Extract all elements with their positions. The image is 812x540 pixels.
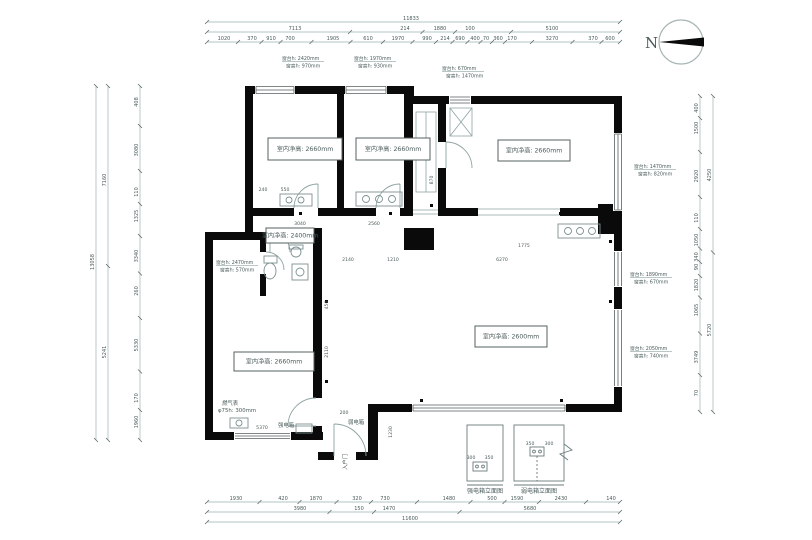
room-labels: 室内净高: 2660mm室内净高: 2660mm室内净高: 2660mm室内净高… — [234, 138, 570, 371]
interior-dim: 350 — [526, 441, 535, 447]
wall-left-upper — [245, 86, 253, 240]
wall-right-1 — [614, 104, 622, 134]
chain-left-total: 13058 — [90, 84, 98, 442]
dim-label: 700 — [285, 36, 295, 42]
dim-label: 400 — [470, 36, 480, 42]
dim-label: 1480 — [443, 496, 456, 502]
shaft-cross — [450, 108, 472, 136]
chain-left-detail: 40830801101325334026053301701960 — [134, 84, 142, 442]
detail-caption-2: 弱电箱立面图 — [521, 487, 557, 495]
wall-right-3 — [614, 286, 622, 310]
dim-label: 214 — [440, 36, 450, 42]
floor-plan-svg: N 强电箱立面图 弱电箱立面图 118337113214188010051001… — [0, 0, 812, 540]
interior-dim: 1230 — [388, 426, 394, 438]
room-label-living: 室内净高: 2600mm — [475, 326, 547, 347]
dim-label: 1500 — [694, 122, 700, 135]
dim-label: 1870 — [310, 496, 323, 502]
dim-label: 600 — [605, 36, 615, 42]
door-swing-kitchen — [288, 398, 316, 426]
window-height-text: 窗高h: 1470mm — [446, 72, 484, 79]
dim-label: 2920 — [694, 170, 700, 183]
window-right-2 — [613, 251, 623, 287]
dim-label: 7160 — [102, 174, 108, 187]
dim-label: 1065 — [694, 304, 700, 317]
window-annotation-7: 窗台h: 2050mm窗高h: 740mm — [630, 345, 672, 359]
dim-label: 1590 — [511, 496, 524, 502]
interior-dim: 300 — [545, 441, 554, 447]
room-label-text: 室内净高: 2660mm — [246, 358, 303, 366]
interior-dim: 2140 — [342, 257, 354, 263]
break-line — [560, 444, 572, 460]
dim-label: 5330 — [134, 339, 140, 352]
dim-label: 1325 — [134, 210, 140, 223]
chain-bottom-total: 11600 — [205, 516, 622, 524]
interior-dim: 550 — [281, 187, 290, 193]
wall-kitchen-right-lower — [313, 426, 322, 440]
window-height-text: 窗高h: 570mm — [220, 266, 255, 273]
window-annotation-2: 窗台h: 1970mm窗高h: 930mm — [354, 55, 396, 69]
window-sill-text: 窗台h: 2420mm — [282, 55, 320, 62]
dresser-bed3 — [558, 224, 600, 238]
misc-label: φ75h: 300mm — [218, 408, 256, 414]
room-label-text: 室内净高: 2400mm — [262, 232, 319, 240]
chain-top-mid: 711321418801005100 — [205, 26, 622, 34]
dim-label: 11600 — [402, 516, 418, 522]
window-sill-text: 窗台h: 1890mm — [630, 271, 668, 278]
dim-label: 140 — [606, 496, 616, 502]
dim-label: 990 — [422, 36, 432, 42]
dim-label: 1820 — [694, 279, 700, 292]
window-sill-text: 窗台h: 670mm — [442, 65, 477, 72]
window-height-text: 窗高h: 740mm — [634, 352, 669, 359]
room-label-text: 室内净高: 2600mm — [483, 333, 540, 341]
interior-dim: 1775 — [518, 243, 530, 249]
interior-dim: 240 — [259, 187, 268, 193]
room-label-text: 室内净高: 2660mm — [365, 145, 422, 153]
room-label-bedroom-3: 室内净高: 2660mm — [498, 140, 570, 161]
interior-dim: 350 — [485, 455, 494, 461]
detail-caption-1: 强电箱立面图 — [467, 487, 503, 495]
detail-block-2 — [514, 425, 572, 485]
dim-label: 730 — [380, 496, 390, 502]
detail-block-1 — [467, 425, 503, 485]
interior-dimensions: 2405503040256021401210627017758704502110… — [256, 176, 553, 461]
floor-plan-page: N 强电箱立面图 弱电箱立面图 118337113214188010051001… — [0, 0, 812, 540]
dim-label: 7113 — [289, 26, 302, 32]
dim-label: 110 — [134, 187, 140, 197]
dim-label: 5241 — [102, 346, 108, 359]
chain-right-total: 42505720 — [707, 94, 715, 414]
column — [404, 228, 434, 250]
wall-kitchen-right-upper — [313, 296, 322, 398]
wall-entry-stub — [368, 404, 378, 460]
interior-dim: 450 — [324, 301, 330, 310]
detail-blocks: 强电箱立面图 弱电箱立面图 — [467, 425, 572, 495]
dim-label: 3270 — [546, 36, 559, 42]
dim-label: 90 — [694, 264, 700, 270]
interior-dim: 1210 — [387, 257, 399, 263]
wall-left-lower — [205, 232, 213, 440]
dim-label: 340 — [694, 252, 700, 262]
room-label-bedroom-2: 室内净高: 2660mm — [356, 138, 430, 160]
dim-label: 910 — [266, 36, 276, 42]
dim-label: 1020 — [218, 36, 231, 42]
window-right-1 — [613, 133, 623, 211]
dim-label: 1905 — [327, 36, 340, 42]
room-label-bathroom: 室内净高: 2400mm — [262, 228, 319, 243]
window-annotation-5: 窗台h: 1470mm窗高h: 820mm — [634, 163, 676, 177]
dim-label: 70 — [483, 36, 489, 42]
window-annotation-3: 窗台h: 670mm窗高h: 1470mm — [442, 65, 484, 79]
door-gap-bed2 — [376, 207, 400, 217]
dim-label: 260 — [134, 286, 140, 296]
dim-label: 170 — [134, 393, 140, 403]
window-sill-text: 窗台h: 1970mm — [354, 55, 392, 62]
cased-opening-living — [478, 209, 560, 215]
window-right-3 — [613, 309, 623, 387]
interior-dim: 6270 — [496, 257, 508, 263]
room-label-text: 室内净高: 2660mm — [277, 145, 334, 153]
dim-label: 3980 — [294, 506, 307, 512]
washing-machine — [292, 264, 308, 280]
wall-top-right — [404, 96, 622, 104]
window-top-3 — [449, 95, 471, 105]
dim-label: 360 — [493, 36, 503, 42]
wall-entry-right — [356, 452, 370, 460]
window-height-text: 窗高h: 820mm — [638, 170, 673, 177]
room-label-text: 室内净高: 2660mm — [506, 147, 563, 155]
window-sill-text: 窗台h: 2470mm — [216, 259, 254, 266]
chain-top-detail: 1020370910700190561019709902146904007036… — [205, 36, 622, 44]
dim-label: 13058 — [90, 254, 96, 270]
dim-label: 11833 — [403, 16, 419, 22]
dim-label: 3340 — [134, 250, 140, 263]
dim-label: 5720 — [707, 324, 713, 337]
dim-label: 370 — [247, 36, 257, 42]
room-label-bedroom-1: 室内净高: 2660mm — [268, 138, 342, 160]
wall-right-2 — [614, 234, 622, 252]
dim-label: 370 — [588, 36, 598, 42]
window-sill-text: 窗台h: 2050mm — [630, 345, 668, 352]
dim-label: 1930 — [230, 496, 243, 502]
dim-label: 2430 — [555, 496, 568, 502]
wall-entry-left — [318, 452, 334, 460]
dim-label: 170 — [507, 36, 517, 42]
window-height-text: 窗高h: 670mm — [634, 278, 669, 285]
dim-label: 150 — [354, 506, 364, 512]
dim-label: 110 — [694, 213, 700, 223]
door-swing-bed1 — [294, 184, 318, 208]
dim-label: 1880 — [434, 26, 447, 32]
north-needle-icon — [659, 38, 704, 47]
dim-label: 5680 — [524, 506, 537, 512]
dim-label: 690 — [455, 36, 465, 42]
interior-dim: 5370 — [256, 425, 268, 431]
dim-label: 100 — [465, 26, 475, 32]
radiator-bed2 — [356, 192, 402, 206]
chain-right-detail: 4001500292011010503409018201065374970 — [694, 94, 702, 414]
sink — [289, 245, 303, 257]
door-swing-bed3 — [446, 142, 472, 168]
dim-label: 1970 — [392, 36, 405, 42]
dim-label: 400 — [694, 103, 700, 113]
interior-dim: 300 — [467, 455, 476, 461]
dim-label: 3080 — [134, 144, 140, 157]
dim-label: 4250 — [707, 169, 713, 182]
dim-label: 420 — [278, 496, 288, 502]
dim-label: 1470 — [383, 506, 396, 512]
door-gap-bed1 — [294, 207, 318, 217]
dim-label: 70 — [694, 390, 700, 396]
window-annotation-6: 窗台h: 1890mm窗高h: 670mm — [630, 271, 672, 285]
misc-label: 入户门 — [341, 454, 349, 470]
cased-opening-hall — [413, 210, 438, 214]
dim-label: 500 — [487, 496, 497, 502]
window-annotation-1: 窗台h: 2420mm窗高h: 970mm — [282, 55, 324, 69]
entry-cabinet — [296, 424, 312, 433]
window-kitchen — [234, 431, 291, 441]
room-label-kitchen: 室内净高: 2660mm — [234, 352, 314, 371]
dim-label: 214 — [400, 26, 410, 32]
dim-label: 3749 — [694, 351, 700, 364]
chain-top-total: 11833 — [205, 16, 622, 24]
gas-meter — [230, 418, 248, 428]
window-top-1 — [255, 85, 295, 95]
window-bottom-1 — [412, 403, 566, 413]
chain-left-mid: 71605241 — [102, 84, 110, 442]
misc-label: 弱电箱 — [348, 418, 365, 426]
dim-label: 5100 — [546, 26, 559, 32]
interior-dim: 200 — [340, 410, 349, 416]
dim-label: 1960 — [134, 416, 140, 429]
north-arrow: N — [645, 20, 704, 64]
door-swing-entry — [334, 424, 366, 456]
window-height-text: 窗高h: 930mm — [358, 62, 393, 69]
dim-label: 320 — [352, 496, 362, 502]
window-sill-text: 窗台h: 1470mm — [634, 163, 672, 170]
dim-label: 610 — [363, 36, 373, 42]
chain-bottom-mid: 398015014705680 — [205, 506, 622, 514]
door-gap-bed3 — [437, 142, 447, 168]
window-height-text: 窗高h: 970mm — [286, 62, 321, 69]
interior-dim: 2110 — [324, 346, 330, 358]
north-label: N — [645, 34, 658, 52]
radiator-bed1 — [280, 194, 312, 206]
misc-label: 强电箱 — [278, 421, 295, 429]
dim-label: 1050 — [694, 234, 700, 247]
misc-label: 燃气表 — [222, 399, 239, 407]
chain-bottom-detail: 19304201870320730148050015902430140 — [205, 496, 622, 504]
dim-label: 408 — [134, 97, 140, 107]
interior-dim: 870 — [429, 176, 435, 185]
window-top-2 — [345, 85, 387, 95]
window-annotation-4: 窗台h: 2470mm窗高h: 570mm — [216, 259, 258, 273]
interior-dim: 3040 — [294, 221, 306, 227]
interior-dim: 2560 — [368, 221, 380, 227]
